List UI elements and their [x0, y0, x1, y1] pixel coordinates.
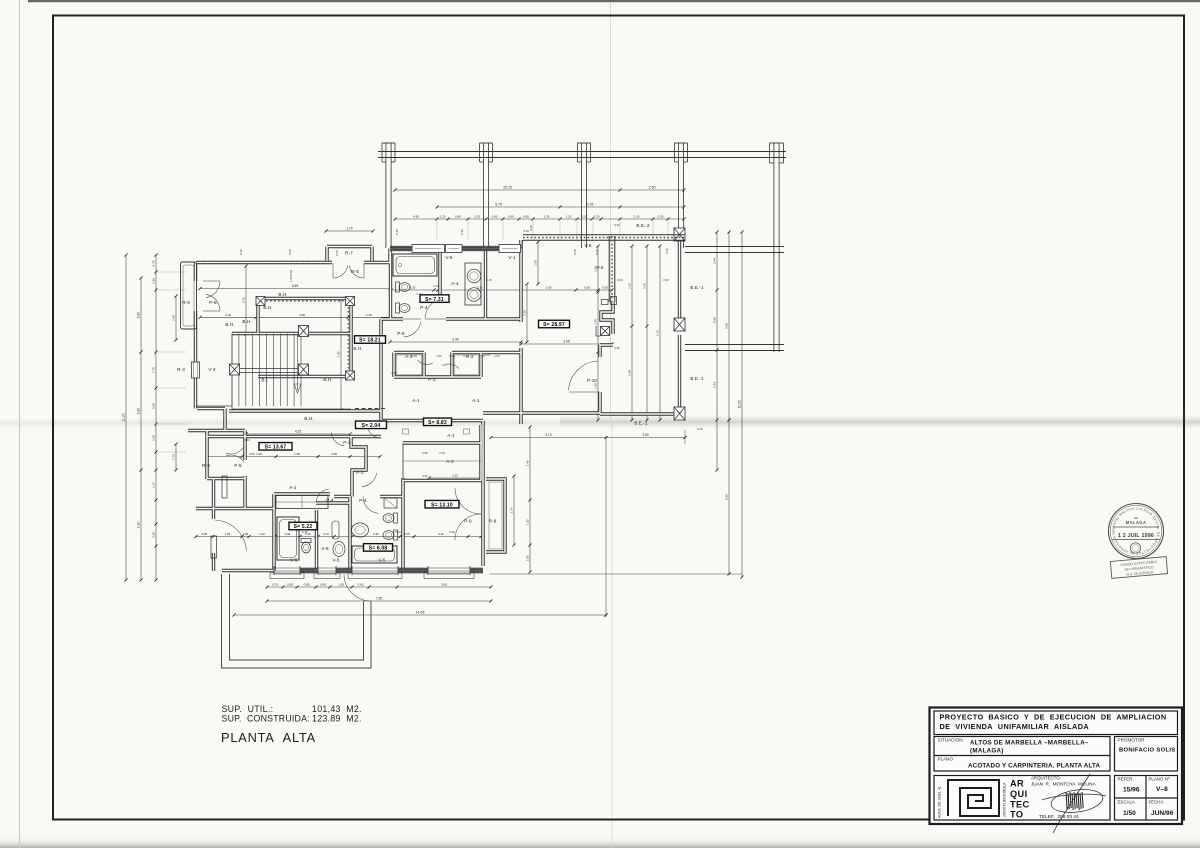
- svg-text:5.50: 5.50: [523, 310, 527, 316]
- svg-text:0.60: 0.60: [508, 215, 514, 219]
- svg-text:S= 18.21: S= 18.21: [359, 338, 381, 344]
- svg-text:29640 FUENGIROLA: 29640 FUENGIROLA: [1003, 782, 1007, 817]
- svg-text:AR: AR: [1010, 779, 1024, 789]
- svg-text:2.40: 2.40: [526, 460, 530, 466]
- svg-text:15/96: 15/96: [1123, 787, 1140, 794]
- svg-text:R-5: R-5: [351, 269, 359, 274]
- svg-text:ARQUITECTO:: ARQUITECTO:: [1031, 776, 1061, 781]
- svg-text:1.06: 1.06: [331, 452, 337, 456]
- svg-text:1.30: 1.30: [152, 435, 156, 441]
- svg-text:JUAN R. MONTOYA MOLINA: JUAN R. MONTOYA MOLINA: [1031, 782, 1097, 787]
- svg-text:2.19: 2.19: [628, 283, 632, 289]
- svg-text:B.E.-1: B.E.-1: [690, 285, 704, 290]
- svg-text:12.20: 12.20: [738, 400, 742, 408]
- svg-text:B.E.-1: B.E.-1: [690, 376, 704, 381]
- svg-text:0.60: 0.60: [492, 215, 498, 219]
- svg-text:S= 6.08: S= 6.08: [369, 546, 388, 552]
- svg-text:0.30: 0.30: [614, 223, 620, 227]
- svg-text:R-8: R-8: [202, 463, 210, 468]
- svg-text:1.27: 1.27: [152, 482, 156, 488]
- svg-text:V-6: V-6: [584, 243, 592, 248]
- svg-text:1.45: 1.45: [366, 313, 372, 317]
- svg-text:0.30: 0.30: [243, 532, 249, 536]
- svg-text:ALTOS DE MARBELLA –MARBELLA–: ALTOS DE MARBELLA –MARBELLA–: [970, 740, 1089, 747]
- svg-text:P-5: P-5: [209, 300, 217, 305]
- svg-text:A-1: A-1: [412, 398, 420, 403]
- svg-text:PLANO Nº: PLANO Nº: [1149, 777, 1170, 782]
- svg-text:S= 13.10: S= 13.10: [431, 502, 453, 508]
- svg-text:ESCALA: ESCALA: [1118, 800, 1135, 805]
- svg-text:5.00: 5.00: [337, 351, 341, 357]
- svg-text:0.30: 0.30: [460, 229, 464, 235]
- svg-text:V–8: V–8: [1156, 786, 1168, 793]
- svg-text:PLANO: PLANO: [938, 757, 954, 762]
- svg-text:0.15: 0.15: [449, 354, 455, 358]
- svg-text:S= 13.67: S= 13.67: [265, 445, 287, 451]
- svg-text:1.65: 1.65: [225, 532, 231, 536]
- svg-text:0.50: 0.50: [584, 286, 590, 290]
- svg-text:SUP. CONSTRUIDA:: SUP. CONSTRUIDA:: [222, 714, 310, 724]
- svg-text:2.30: 2.30: [137, 522, 141, 529]
- svg-text:0.15: 0.15: [433, 284, 439, 288]
- svg-text:V-1: V-1: [508, 255, 516, 260]
- svg-text:1.00: 1.00: [526, 555, 530, 561]
- svg-text:1 2 JUIL 1996: 1 2 JUIL 1996: [1118, 533, 1154, 539]
- svg-text:P-10: P-10: [587, 378, 597, 383]
- svg-text:1.40: 1.40: [594, 383, 598, 389]
- svg-text:1.50 0.30: 1.50 0.30: [289, 270, 293, 282]
- svg-text:ACOTADO Y CARPINTERIA. PLANTA: ACOTADO Y CARPINTERIA. PLANTA ALTA: [968, 763, 1100, 770]
- svg-text:0.15: 0.15: [486, 278, 492, 282]
- svg-text:2.70: 2.70: [643, 283, 647, 289]
- svg-text:V-3: V-3: [208, 367, 216, 372]
- svg-text:2.76: 2.76: [587, 203, 594, 207]
- svg-text:6.60: 6.60: [725, 323, 729, 329]
- svg-text:0.60: 0.60: [358, 583, 364, 587]
- svg-text:TO: TO: [1010, 810, 1023, 820]
- svg-text:0.30: 0.30: [658, 215, 664, 219]
- svg-text:B.H.: B.H.: [304, 416, 313, 421]
- svg-text:3.65: 3.65: [441, 583, 447, 587]
- svg-text:0.30: 0.30: [523, 229, 529, 233]
- svg-text:1.35: 1.35: [544, 215, 550, 219]
- svg-text:2.80: 2.80: [642, 433, 648, 437]
- svg-text:0.15: 0.15: [416, 292, 422, 296]
- svg-text:0.50: 0.50: [288, 249, 292, 255]
- svg-text:3.23: 3.23: [452, 474, 458, 478]
- svg-text:1.20: 1.20: [152, 278, 156, 284]
- svg-text:0.30: 0.30: [302, 530, 308, 534]
- svg-text:1.20: 1.20: [566, 215, 572, 219]
- svg-text:0.90: 0.90: [463, 354, 469, 358]
- svg-text:0.30: 0.30: [617, 278, 623, 282]
- svg-text:0.30: 0.30: [244, 438, 250, 442]
- svg-text:1.00: 1.00: [338, 583, 344, 587]
- svg-text:11.20: 11.20: [122, 413, 126, 421]
- svg-text:BONIFACIO SOLIS: BONIFACIO SOLIS: [1119, 748, 1176, 754]
- svg-text:P-4: P-4: [420, 305, 428, 310]
- svg-text:2.40: 2.40: [373, 532, 379, 536]
- svg-text:0.30: 0.30: [602, 286, 608, 290]
- svg-text:B.H.: B.H.: [225, 322, 234, 327]
- svg-text:SUP. UTIL.:: SUP. UTIL.:: [222, 704, 274, 714]
- svg-text:0.60: 0.60: [320, 583, 326, 587]
- svg-text:2.40: 2.40: [172, 315, 176, 321]
- svg-text:0.15: 0.15: [697, 427, 703, 431]
- svg-text:123.89 M2.: 123.89 M2.: [312, 714, 362, 724]
- svg-text:0.30: 0.30: [663, 278, 669, 282]
- svg-text:B.H.: B.H.: [278, 292, 287, 297]
- svg-text:QUI: QUI: [1010, 789, 1028, 799]
- svg-text:P-3: P-3: [343, 440, 351, 445]
- svg-text:4.90: 4.90: [413, 215, 419, 219]
- svg-text:2.20: 2.20: [526, 519, 530, 525]
- svg-text:0.15: 0.15: [439, 451, 445, 455]
- svg-text:2.50: 2.50: [649, 186, 656, 190]
- svg-text:0.70: 0.70: [272, 583, 278, 587]
- svg-text:0.30: 0.30: [594, 215, 600, 219]
- svg-text:2.10: 2.10: [225, 313, 231, 317]
- svg-text:A-4: A-4: [451, 281, 459, 286]
- svg-text:0.60: 0.60: [152, 403, 156, 409]
- svg-text:1/50: 1/50: [1123, 810, 1136, 817]
- svg-text:7.95: 7.95: [376, 597, 383, 601]
- svg-text:0.30: 0.30: [665, 248, 669, 254]
- svg-text:B.H.: B.H.: [242, 319, 251, 324]
- svg-text:0.60: 0.60: [422, 474, 428, 478]
- svg-text:P-3: P-3: [428, 377, 436, 382]
- svg-text:1.55: 1.55: [294, 452, 300, 456]
- svg-text:3.90: 3.90: [299, 313, 305, 317]
- svg-text:1.20: 1.20: [259, 532, 265, 536]
- svg-text:MALAGA: MALAGA: [1126, 520, 1147, 525]
- svg-text:V-5: V-5: [378, 558, 386, 563]
- svg-text:B.I.: B.I.: [261, 378, 268, 383]
- svg-text:A-1: A-1: [289, 485, 297, 490]
- svg-text:1.60: 1.60: [534, 260, 538, 266]
- svg-text:5.60: 5.60: [137, 312, 141, 319]
- svg-text:R-8: R-8: [182, 300, 190, 305]
- svg-text:(MALAGA): (MALAGA): [970, 748, 1004, 755]
- svg-text:0.30: 0.30: [614, 346, 620, 350]
- svg-text:1.03: 1.03: [474, 215, 480, 219]
- svg-text:S= 2.04: S= 2.04: [362, 423, 381, 429]
- svg-text:S= 8.83: S= 8.83: [428, 420, 447, 426]
- svg-text:2.44: 2.44: [713, 258, 717, 264]
- svg-text:0.75: 0.75: [152, 260, 156, 266]
- svg-text:0.60: 0.60: [713, 317, 717, 323]
- svg-text:4.10: 4.10: [545, 433, 551, 437]
- svg-text:R-3: R-3: [177, 367, 185, 372]
- svg-text:14.65: 14.65: [416, 611, 425, 615]
- svg-text:V-5: V-5: [290, 558, 298, 563]
- svg-text:0.95: 0.95: [202, 532, 208, 536]
- svg-text:5.60: 5.60: [725, 494, 729, 500]
- svg-text:TELEF. 258 03 44: TELEF. 258 03 44: [1039, 814, 1079, 820]
- svg-text:0.30: 0.30: [438, 532, 444, 536]
- svg-text:0.57: 0.57: [582, 215, 588, 219]
- svg-text:S= 7.31: S= 7.31: [425, 297, 444, 303]
- svg-text:2.30: 2.30: [152, 532, 156, 538]
- svg-text:P-5: P-5: [234, 463, 242, 468]
- svg-text:0.50: 0.50: [573, 249, 577, 255]
- svg-text:2.44: 2.44: [713, 382, 717, 388]
- svg-text:1.68: 1.68: [628, 370, 632, 376]
- svg-text:1.60: 1.60: [546, 286, 552, 290]
- svg-text:1.70: 1.70: [172, 454, 176, 460]
- svg-text:3.30: 3.30: [137, 408, 141, 415]
- svg-text:0.15: 0.15: [395, 530, 401, 534]
- svg-text:A-1: A-1: [472, 398, 480, 403]
- svg-text:S= 28.97: S= 28.97: [543, 322, 565, 328]
- svg-text:P-3: P-3: [356, 470, 364, 475]
- svg-text:0.60: 0.60: [422, 451, 428, 455]
- svg-text:2.70: 2.70: [510, 507, 514, 513]
- svg-text:P-4: P-4: [359, 498, 367, 503]
- svg-text:A-3: A-3: [446, 459, 454, 464]
- svg-text:0.30: 0.30: [239, 249, 243, 255]
- svg-text:1.75: 1.75: [152, 367, 156, 373]
- svg-text:AVDA. DE SUEL 41: AVDA. DE SUEL 41: [938, 786, 942, 818]
- svg-text:JUN/96: JUN/96: [1151, 810, 1174, 817]
- svg-text:0.80: 0.80: [304, 583, 310, 587]
- svg-text:V-6: V-6: [596, 265, 604, 270]
- svg-text:B.E.-1: B.E.-1: [634, 421, 648, 426]
- svg-text:1.03: 1.03: [494, 354, 500, 358]
- svg-text:V-5: V-5: [445, 255, 453, 260]
- svg-text:PLANTA ALTA: PLANTA ALTA: [221, 730, 316, 745]
- svg-text:B.E.-2: B.E.-2: [636, 223, 650, 228]
- svg-text:6.55: 6.55: [292, 284, 298, 288]
- svg-text:PROYECTO BASICO Y DE EJECU: PROYECTO BASICO Y DE EJECUCION DE AMPLIA…: [940, 713, 1167, 722]
- svg-text:0.30: 0.30: [529, 225, 533, 231]
- svg-text:R-7: R-7: [345, 251, 353, 256]
- svg-text:2.10: 2.10: [634, 215, 640, 219]
- svg-text:3.95: 3.95: [563, 340, 569, 344]
- svg-text:P-9: P-9: [464, 519, 472, 524]
- svg-text:0.15: 0.15: [479, 354, 485, 358]
- svg-text:1.65: 1.65: [256, 452, 262, 456]
- svg-text:PROMOTOR: PROMOTOR: [1118, 738, 1146, 743]
- svg-text:DE VIVIENDA UNIFAMILIAR AIS: DE VIVIENDA UNIFAMILIAR AISLADA: [940, 722, 1090, 731]
- svg-text:V-5: V-5: [332, 558, 340, 563]
- svg-text:0.80: 0.80: [455, 215, 461, 219]
- svg-text:0.50: 0.50: [335, 250, 339, 256]
- svg-text:1.03: 1.03: [436, 354, 442, 358]
- svg-text:0.15: 0.15: [411, 354, 417, 358]
- svg-text:0.60: 0.60: [287, 583, 293, 587]
- svg-text:0.15: 0.15: [391, 371, 397, 375]
- svg-text:A-5: A-5: [321, 546, 329, 551]
- svg-text:B.H.: B.H.: [263, 305, 272, 310]
- svg-text:0.30: 0.30: [449, 530, 455, 534]
- svg-text:P-8: P-8: [397, 331, 405, 336]
- svg-text:2.45: 2.45: [242, 297, 246, 303]
- svg-text:FECHA: FECHA: [1149, 800, 1164, 805]
- svg-text:0.30: 0.30: [595, 249, 599, 255]
- svg-text:3.40: 3.40: [452, 338, 458, 342]
- svg-text:1.70: 1.70: [346, 227, 352, 231]
- svg-text:1.20: 1.20: [440, 215, 446, 219]
- svg-text:SITUACION: SITUACION: [938, 738, 963, 743]
- svg-text:TEC: TEC: [1010, 799, 1030, 809]
- svg-text:2.75: 2.75: [404, 532, 410, 536]
- svg-text:4.25: 4.25: [295, 430, 301, 434]
- svg-text:1.68: 1.68: [594, 319, 598, 325]
- svg-text:A-1: A-1: [447, 433, 455, 438]
- svg-text:B.H.: B.H.: [353, 346, 362, 351]
- svg-text:0.60: 0.60: [523, 215, 529, 219]
- svg-text:5.75: 5.75: [495, 203, 502, 207]
- svg-text:REFER.: REFER.: [1118, 777, 1134, 782]
- svg-text:0.50: 0.50: [249, 452, 255, 456]
- svg-text:0.30: 0.30: [395, 229, 399, 235]
- svg-text:15.15: 15.15: [503, 186, 512, 190]
- svg-text:R-8: R-8: [489, 519, 497, 524]
- svg-text:0.90: 0.90: [285, 532, 291, 536]
- svg-text:B.H.: B.H.: [323, 377, 332, 382]
- svg-text:0.70: 0.70: [323, 532, 329, 536]
- svg-text:101,43 M2.: 101,43 M2.: [312, 704, 362, 714]
- svg-text:P-4: P-4: [326, 498, 334, 503]
- svg-text:3.25: 3.25: [410, 286, 416, 290]
- svg-text:6.15: 6.15: [656, 330, 660, 336]
- svg-text:0.15: 0.15: [484, 353, 490, 357]
